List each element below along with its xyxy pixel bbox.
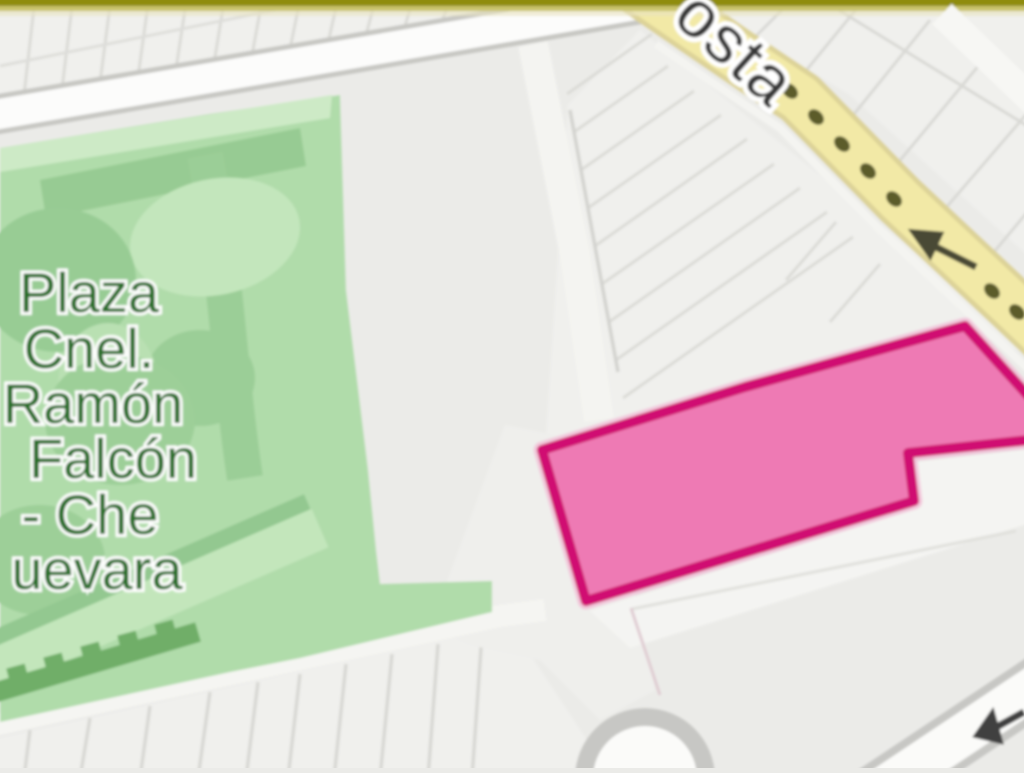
svg-text:uevara: uevara <box>11 538 183 601</box>
svg-text:- Che: - Che <box>22 483 159 546</box>
svg-text:Ramón: Ramón <box>3 372 184 435</box>
svg-text:Cnel.: Cnel. <box>24 317 155 380</box>
svg-text:Plaza: Plaza <box>19 261 160 324</box>
svg-text:Falcón: Falcón <box>29 427 197 490</box>
